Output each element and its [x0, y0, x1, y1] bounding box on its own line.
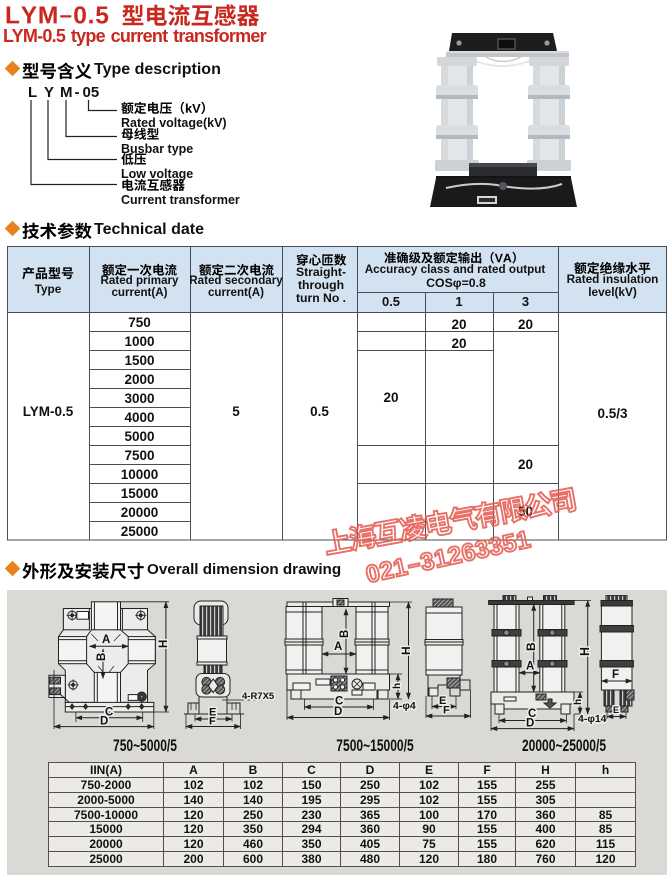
svg-text:B: B [339, 630, 351, 638]
svg-text:A: A [526, 661, 534, 673]
svg-text:B: B [524, 642, 538, 651]
svg-text:D: D [526, 718, 534, 730]
svg-text:D: D [334, 706, 342, 718]
svg-text:H: H [399, 646, 413, 655]
svg-text:4-R7X5: 4-R7X5 [242, 691, 275, 702]
svg-text:F: F [612, 669, 619, 681]
svg-text:H: H [158, 640, 170, 648]
svg-text:A: A [334, 641, 342, 653]
svg-text:4-φ14: 4-φ14 [578, 713, 607, 725]
svg-text:h: h [392, 683, 403, 689]
svg-text:h: h [573, 699, 584, 705]
svg-text:F: F [443, 705, 450, 717]
svg-text:D: D [100, 716, 108, 728]
svg-text:4-φ4: 4-φ4 [393, 700, 416, 712]
svg-text:A: A [102, 634, 110, 646]
svg-text:E: E [613, 705, 619, 715]
svg-text:F: F [209, 716, 216, 728]
svg-text:H: H [578, 647, 592, 656]
svg-text:B: B [96, 653, 108, 661]
